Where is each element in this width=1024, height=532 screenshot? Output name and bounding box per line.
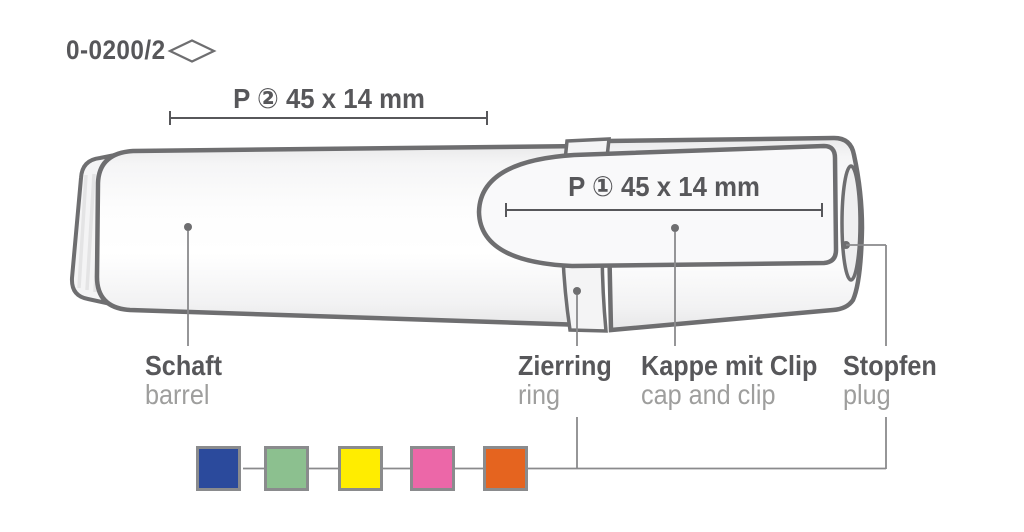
label-plug-de: Stopfen bbox=[843, 351, 937, 380]
label-cap-and-clip-en: cap and clip bbox=[641, 380, 817, 409]
pen-clip bbox=[479, 146, 836, 266]
label-barrel-de: Schaft bbox=[145, 351, 222, 380]
label-ring: Zierring ring bbox=[518, 351, 612, 409]
pen-plug bbox=[842, 166, 860, 280]
label-plug-en: plug bbox=[843, 380, 937, 409]
part-number: 0-0200/2 bbox=[66, 35, 166, 66]
label-ring-de: Zierring bbox=[518, 351, 612, 380]
print-area-1-label: P ① 45 x 14 mm bbox=[518, 170, 811, 203]
label-ring-en: ring bbox=[518, 380, 612, 409]
ring-leader-dot bbox=[573, 287, 581, 295]
color-swatch-orange bbox=[483, 446, 528, 491]
label-cap-and-clip-de: Kappe mit Clip bbox=[641, 351, 817, 380]
color-swatch-green bbox=[264, 446, 309, 491]
color-swatch-yellow bbox=[338, 446, 383, 491]
label-cap-and-clip: Kappe mit Clip cap and clip bbox=[641, 351, 817, 409]
barrel-leader-dot bbox=[184, 223, 192, 231]
color-swatch-pink bbox=[410, 446, 455, 491]
spec-sheet: 0-0200/2 P ② 45 x 14 mm P ① 45 x 14 mm S… bbox=[0, 0, 1024, 532]
clip-leader-dot bbox=[671, 224, 679, 232]
print-area-2-label: P ② 45 x 14 mm bbox=[183, 82, 476, 115]
diamond-icon bbox=[170, 41, 214, 62]
label-barrel: Schaft barrel bbox=[145, 351, 222, 409]
label-barrel-en: barrel bbox=[145, 380, 222, 409]
color-swatch-blue bbox=[196, 446, 241, 491]
label-plug: Stopfen plug bbox=[843, 351, 937, 409]
